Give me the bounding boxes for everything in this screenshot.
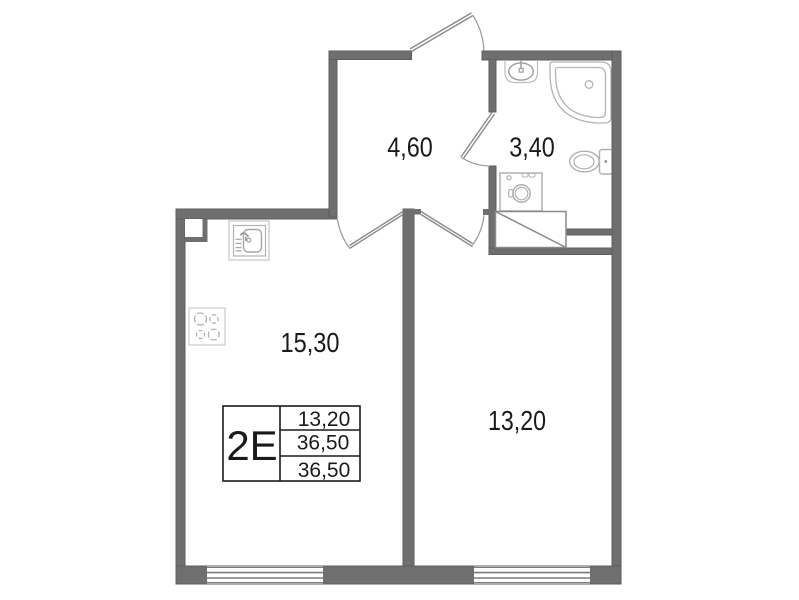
svg-text:4,60: 4,60	[387, 132, 433, 163]
svg-text:36,50: 36,50	[297, 432, 350, 455]
svg-text:13,20: 13,20	[298, 408, 351, 431]
svg-text:3,40: 3,40	[509, 132, 555, 163]
svg-text:2E: 2E	[226, 422, 277, 469]
svg-text:15,30: 15,30	[281, 327, 340, 358]
svg-text:36,50: 36,50	[298, 459, 351, 482]
svg-text:13,20: 13,20	[488, 405, 546, 436]
